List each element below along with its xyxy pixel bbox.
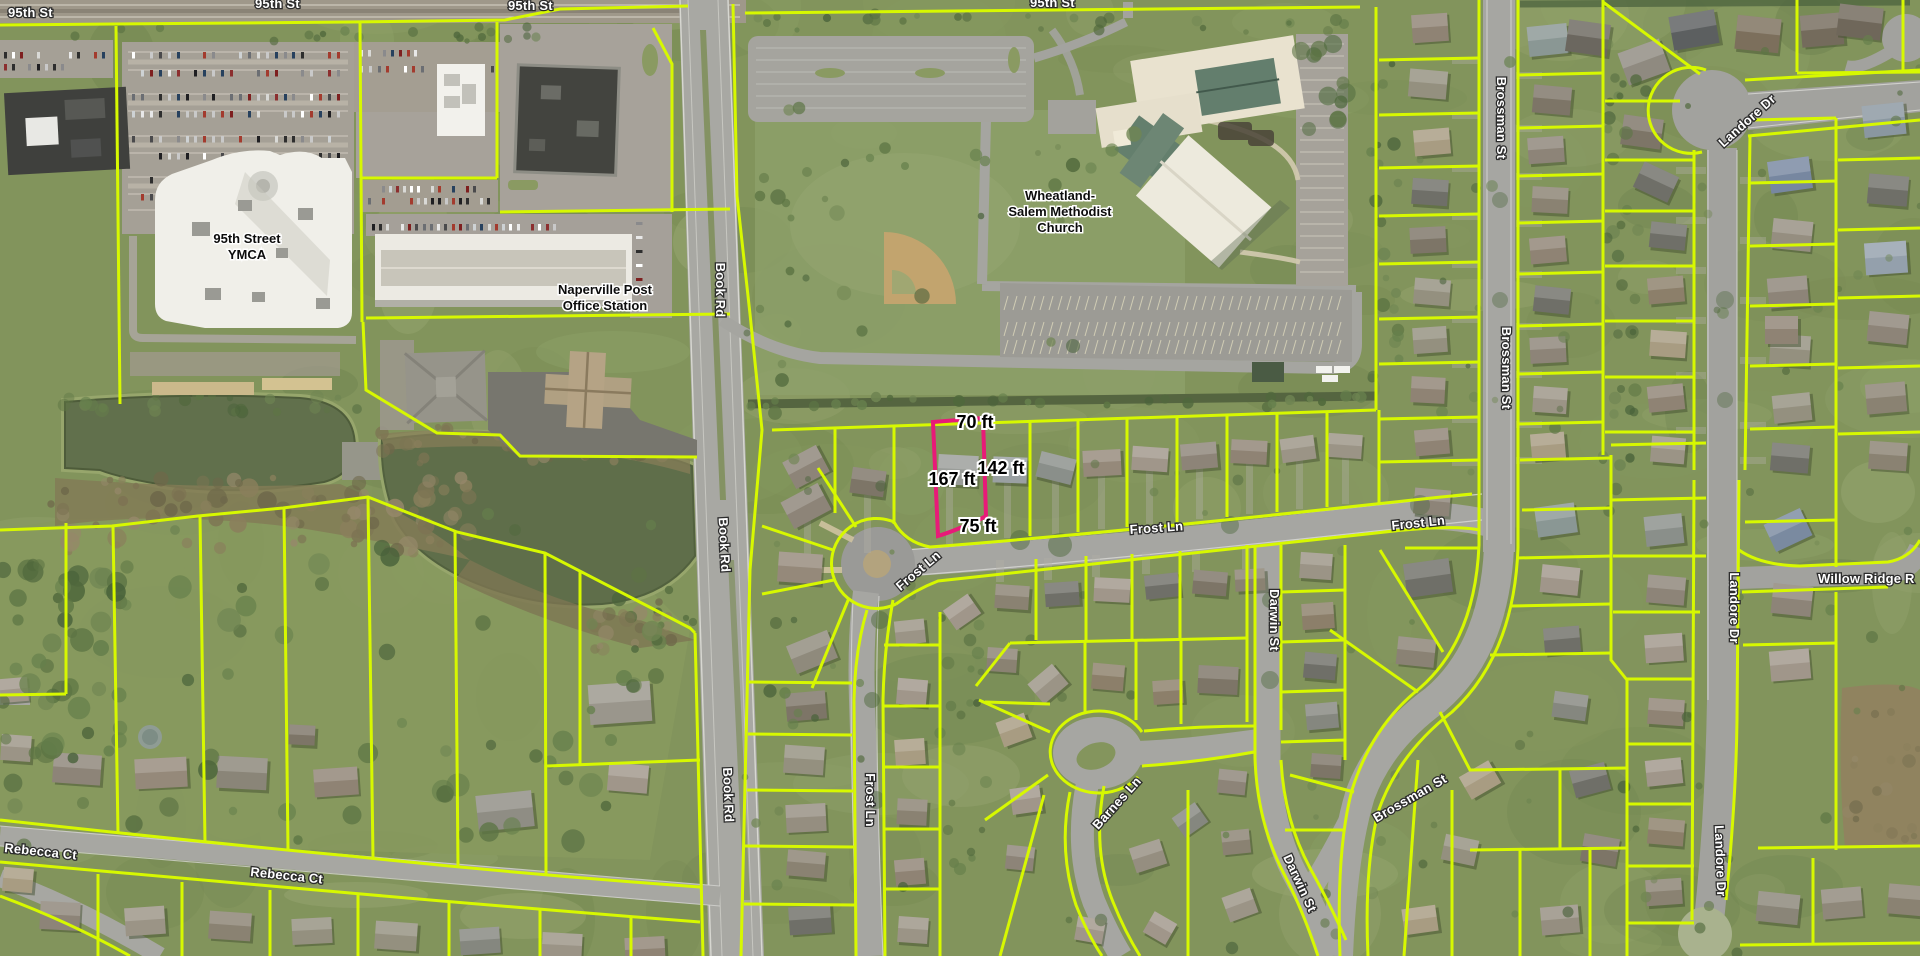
svg-text:167 ft: 167 ft — [928, 469, 975, 489]
svg-text:Darwin St: Darwin St — [1267, 589, 1282, 651]
svg-text:Book Rd: Book Rd — [713, 263, 728, 318]
svg-text:Book Rd: Book Rd — [720, 767, 737, 822]
svg-text:Naperville Post: Naperville Post — [558, 282, 653, 297]
svg-text:95th St: 95th St — [1030, 0, 1075, 10]
svg-text:Wheatland-: Wheatland- — [1025, 188, 1095, 203]
svg-text:Brossman St: Brossman St — [1494, 77, 1509, 160]
svg-text:75 ft: 75 ft — [959, 516, 996, 536]
svg-text:142 ft: 142 ft — [977, 458, 1024, 478]
svg-text:Church: Church — [1037, 220, 1083, 235]
svg-text:Landore Dr: Landore Dr — [1727, 572, 1742, 643]
svg-text:Willow Ridge R: Willow Ridge R — [1818, 571, 1915, 586]
svg-text:Landore Dr: Landore Dr — [1712, 825, 1729, 897]
svg-text:95th St: 95th St — [255, 0, 300, 11]
svg-text:70 ft: 70 ft — [956, 412, 993, 432]
svg-text:Brossman St: Brossman St — [1499, 327, 1514, 410]
svg-text:Office Station: Office Station — [563, 298, 648, 313]
svg-text:Salem Methodist: Salem Methodist — [1008, 204, 1112, 219]
svg-text:Frost Ln: Frost Ln — [863, 773, 878, 827]
svg-text:95th St: 95th St — [8, 5, 53, 20]
svg-text:YMCA: YMCA — [228, 247, 267, 262]
svg-text:Book Rd: Book Rd — [716, 517, 734, 573]
svg-text:95th Street: 95th Street — [213, 231, 281, 246]
svg-text:95th St: 95th St — [508, 0, 553, 13]
